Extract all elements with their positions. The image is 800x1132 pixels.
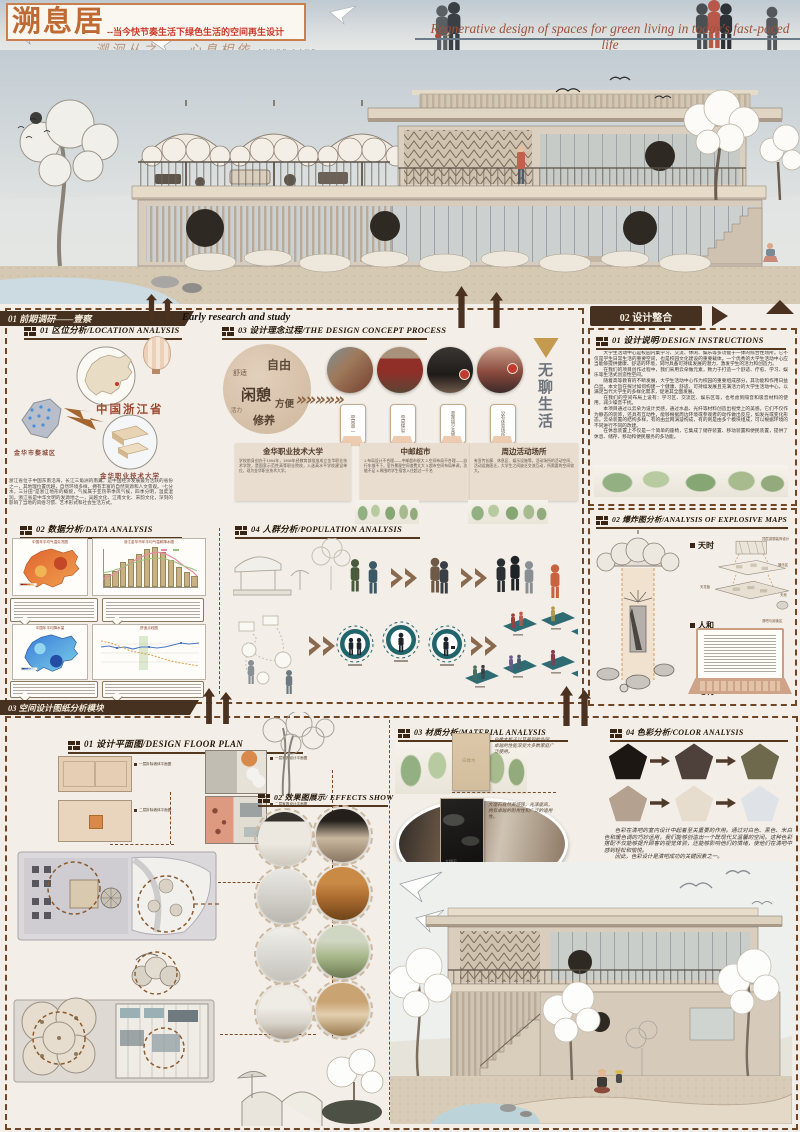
- title-box: 溯息居 --当今快节奏生活下绿色生活的空间再生设计: [6, 3, 306, 41]
- axon-label-5: 清吧与阅读区: [762, 618, 782, 623]
- college-map-circle: [102, 414, 158, 470]
- plan-label: 二层拆除墙体平面图: [134, 808, 171, 813]
- china-map-circle: [76, 346, 136, 406]
- laptop-screen: [696, 628, 784, 680]
- zhejiang-map: [14, 396, 66, 446]
- temperature-lines: [103, 549, 197, 587]
- bottom-building-render: [390, 862, 792, 1124]
- effects-heading: 02 效果图展示/ EFFECTS SHOW: [258, 792, 388, 807]
- connector-dashed: [110, 844, 174, 845]
- color-paragraph: 色彩在清吧的室内设计中起着至关重要的作用。通过对白色、黑色、米白色和暖色调的巧妙…: [604, 828, 792, 861]
- effect-render-1: [258, 812, 311, 865]
- plan-demolish-floor1: [58, 756, 132, 792]
- watercolor-strip: [594, 465, 788, 497]
- effect-render-2: [316, 809, 369, 862]
- header-divider: [415, 38, 800, 40]
- heading-brick-icon: [24, 327, 36, 336]
- college-summary-card: 金华职业技术大学 学校前身创办于1994年，1998年经教育部批准成立金华职业技…: [235, 443, 351, 501]
- chevron-arrows-icon: »»»»»: [294, 390, 346, 410]
- connector-dashed: [220, 1034, 316, 1035]
- chart-caption-bubble: [10, 598, 98, 622]
- heading-brick-icon: [20, 526, 32, 535]
- connector-dashed: [218, 882, 260, 883]
- population-heading: 04 人群分析/POPULATION ANALYSIS: [235, 523, 420, 539]
- axon-label-4: 天池: [780, 592, 787, 597]
- spiral-stairs-detail: [122, 946, 192, 996]
- heading-brick-icon: [222, 327, 234, 336]
- explosive-heading: 02 爆炸图分析/ANALYSIS OF EXPLOSIVE MAPS: [596, 514, 788, 529]
- comfort-line-chart-card: 舒适点线图: [92, 624, 206, 680]
- chart-caption-bubble: [102, 598, 204, 622]
- chart-caption-bubble: [10, 681, 98, 698]
- site-photo-storefront: [327, 347, 373, 393]
- bridge-sketch: [232, 1042, 388, 1126]
- district-label: 金华市婺城区: [14, 448, 56, 457]
- effect-render-8: [316, 983, 369, 1036]
- chart-caption-bubble: [102, 681, 204, 698]
- balloon-basket-icon: [152, 369, 160, 374]
- material-swatch-marble: 大理石: [440, 798, 484, 870]
- poster-title: 溯息居: [12, 6, 105, 38]
- label-tianshi: 天时: [690, 540, 714, 551]
- connector-dashed: [170, 792, 171, 844]
- effect-render-3: [258, 870, 311, 923]
- design-poster: 溯息居 --当今快节奏生活下绿色生活的空间再生设计 溯洄从之——心息相依 INN…: [0, 0, 800, 1132]
- site-photo-supermarket: [377, 347, 423, 393]
- laptop-keyboard: [688, 678, 792, 694]
- china-precipitation-map-card: 中国年平均降水量: [12, 624, 88, 680]
- rendered-plan-roof: [14, 846, 220, 948]
- comfort-line-chart: [101, 635, 199, 671]
- china-precipitation-map: [13, 631, 87, 675]
- material-desc-marble: 大理石自然美感强，光泽度高，拥有卓越的耐用性和广泛的适用性。: [488, 802, 554, 819]
- axon-label-1: 顶层游憩装饰设计: [762, 536, 789, 541]
- effect-render-6: [316, 925, 369, 978]
- laptop-illustration: [688, 628, 792, 698]
- jinhua-climate-chart-card: 浙江金华市年平均气温和降水图: [92, 538, 206, 596]
- supermarket-summary-card: 中邮超市 1.布局设计不合理——中邮超市很大 2.空间布局不合理——自行车放不下…: [360, 443, 471, 501]
- heading-brick-icon: [68, 741, 80, 750]
- en-subtitle: Regnerative design of spaces for green l…: [430, 21, 790, 53]
- location-paragraph: 浙江省位于中国东南沿海，长江三角洲的南翼，是中国经济发展最为活跃的省份之一，其地…: [9, 478, 173, 506]
- decoration-triangle: [712, 306, 728, 326]
- heading-brick-icon: [596, 516, 608, 525]
- location-arrow-icon: [62, 398, 106, 438]
- site-photo-mall-dark: [427, 347, 473, 393]
- axon-label-2: 娱乐区: [778, 562, 788, 567]
- watercolor-strip: [355, 500, 419, 524]
- heading-brick-icon: [258, 794, 270, 803]
- concept-heading: 03 设计理念过程/THE DESIGN CONCEPT PROCESS: [222, 324, 427, 340]
- section3-ribbon: 03 空间设计图纸分析模块: [0, 700, 199, 715]
- connector-dashed: [452, 792, 556, 793]
- watercolor-strip: [468, 500, 548, 524]
- poster-subtitle: --当今快节奏生活下绿色生活的空间再生设计: [107, 25, 284, 38]
- plan-demolish-floor2: [58, 800, 132, 842]
- site-photo-mall-warm: [477, 347, 523, 393]
- building-exploded-axon: [712, 528, 792, 628]
- hero-building-render: [0, 50, 800, 304]
- china-temperature-map: [13, 545, 87, 591]
- boring-life-label: 无聊生活: [534, 362, 555, 440]
- material-desc-oak: 白橡木板子以其美观的外观、卓越的性能深受大多数家庭广泛使用。: [494, 737, 554, 754]
- instructions-text: 大学生活动中心是校园内集学习、交流、休闲、娱乐等多功能于一体的综合性场所。它不仅…: [594, 351, 788, 463]
- china-temperature-map-card: 中国年平均气温实况图: [12, 538, 88, 596]
- population-analysis-graphic: [233, 538, 578, 696]
- data-analysis-heading: 02 数据分析/DATA ANALYSIS: [20, 523, 182, 539]
- material-swatch-oak: 白橡木: [452, 733, 490, 791]
- heading-brick-icon: [596, 337, 608, 346]
- venues-summary-card: 周边活动场所 有宣传长廊、休息区、娱乐设施等，活动场所的活动空间、活动设施匮乏，…: [470, 443, 578, 501]
- section1-ribbon-en: Early research and study: [182, 312, 290, 323]
- hot-air-balloon-icon: [143, 336, 171, 370]
- axon-label-3: 天花板: [700, 584, 710, 589]
- concept-word-cloud-circle: 自由 舒适 闲憩 方便 活力 修养: [223, 344, 311, 434]
- umbrella-exploded-view: [592, 528, 684, 698]
- heading-brick-icon: [235, 526, 247, 535]
- corner-figure: [612, 1070, 626, 1086]
- effect-render-5: [258, 928, 311, 981]
- heading-brick-icon: [610, 729, 622, 738]
- effect-render-7: [258, 986, 311, 1039]
- plan-label: 一层拆除墙体平面图: [134, 762, 171, 767]
- instructions-heading: 01 设计说明/DESIGN INSTRUCTIONS: [596, 334, 786, 350]
- effect-render-4: [316, 867, 369, 920]
- column-divider-dashed: [219, 528, 220, 694]
- section2-tab: 02 设计整合: [590, 306, 702, 326]
- rendered-plan-floor: [12, 992, 216, 1088]
- color-heading: 04 色彩分析/COLOR ANALYSIS: [610, 727, 788, 742]
- heading-brick-icon: [398, 729, 410, 738]
